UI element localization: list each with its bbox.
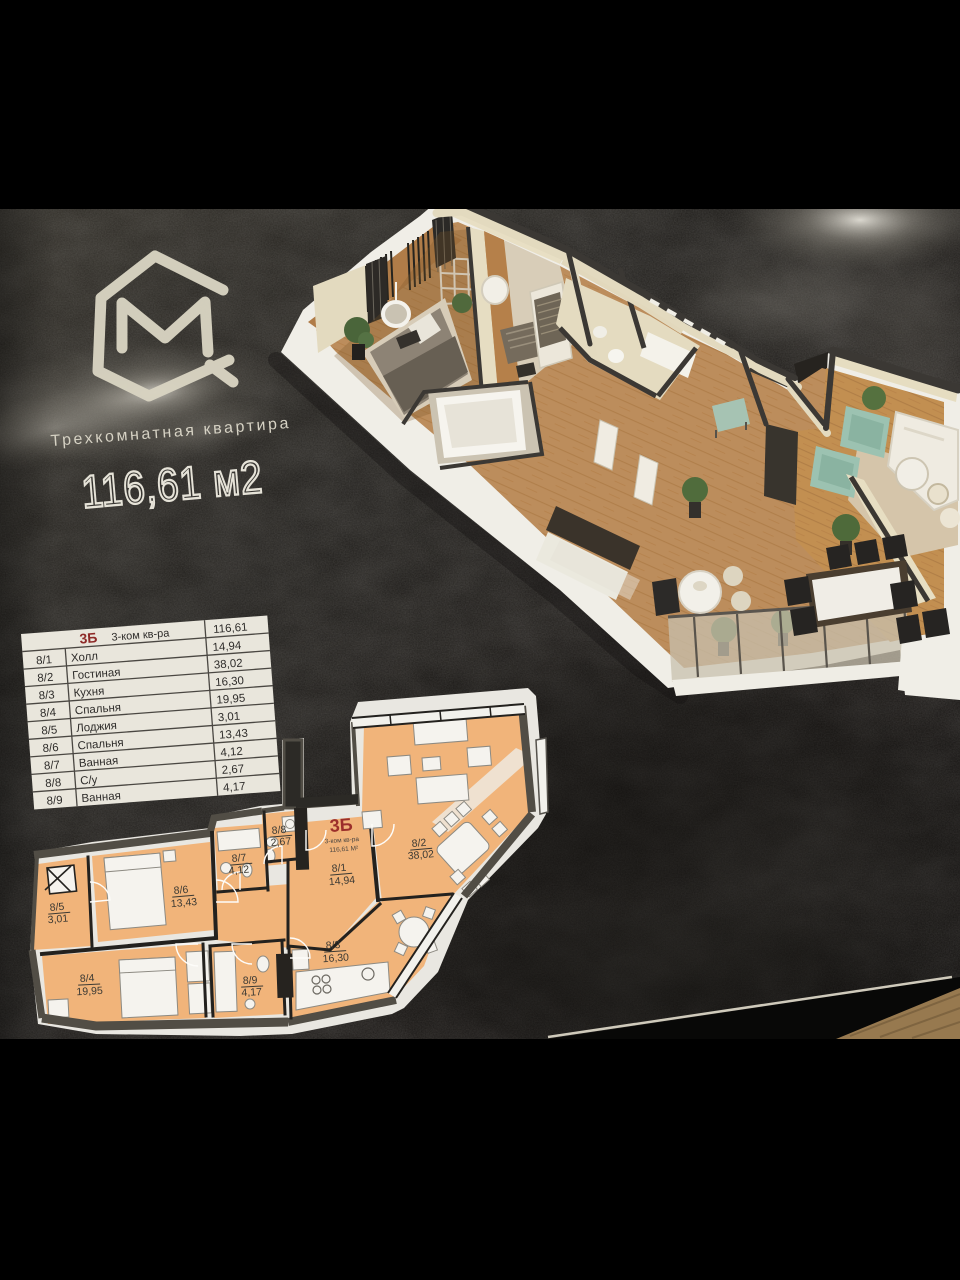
- svg-text:13,43: 13,43: [170, 896, 197, 910]
- svg-text:116,61: 116,61: [213, 622, 248, 637]
- svg-text:2,67: 2,67: [270, 835, 292, 849]
- svg-text:С/у: С/у: [80, 774, 98, 787]
- svg-text:8/8: 8/8: [45, 777, 62, 790]
- svg-text:8/9: 8/9: [46, 795, 63, 808]
- svg-text:19,95: 19,95: [76, 985, 103, 998]
- svg-text:3Б: 3Б: [329, 814, 353, 836]
- svg-text:4,12: 4,12: [220, 746, 243, 760]
- svg-text:8/1: 8/1: [331, 862, 347, 875]
- svg-text:8/6: 8/6: [42, 742, 59, 755]
- svg-text:19,95: 19,95: [216, 693, 246, 707]
- svg-text:8/3: 8/3: [38, 689, 55, 702]
- svg-text:Холл: Холл: [71, 651, 99, 665]
- svg-text:4,17: 4,17: [241, 986, 262, 999]
- svg-text:2,67: 2,67: [221, 763, 244, 777]
- svg-text:14,94: 14,94: [328, 874, 355, 888]
- svg-text:8/5: 8/5: [41, 724, 58, 737]
- svg-text:4,12: 4,12: [228, 864, 250, 878]
- svg-text:3Б: 3Б: [79, 629, 98, 646]
- svg-text:8/4: 8/4: [80, 972, 95, 985]
- svg-text:16,30: 16,30: [215, 675, 245, 689]
- svg-text:3,01: 3,01: [217, 711, 240, 725]
- svg-text:13,43: 13,43: [219, 728, 249, 742]
- svg-text:8/6: 8/6: [173, 884, 189, 897]
- svg-text:8/4: 8/4: [40, 707, 57, 720]
- svg-text:Кухня: Кухня: [73, 686, 105, 700]
- svg-text:14,94: 14,94: [212, 640, 242, 654]
- svg-text:8/3: 8/3: [325, 939, 341, 952]
- svg-text:8/1: 8/1: [36, 654, 53, 667]
- svg-text:16,30: 16,30: [322, 951, 349, 965]
- svg-text:4,17: 4,17: [223, 781, 246, 795]
- svg-text:8/9: 8/9: [243, 974, 258, 987]
- svg-text:3,01: 3,01: [47, 912, 69, 926]
- svg-text:8/2: 8/2: [37, 672, 54, 685]
- svg-text:38,02: 38,02: [213, 657, 243, 671]
- svg-text:8/7: 8/7: [44, 759, 61, 772]
